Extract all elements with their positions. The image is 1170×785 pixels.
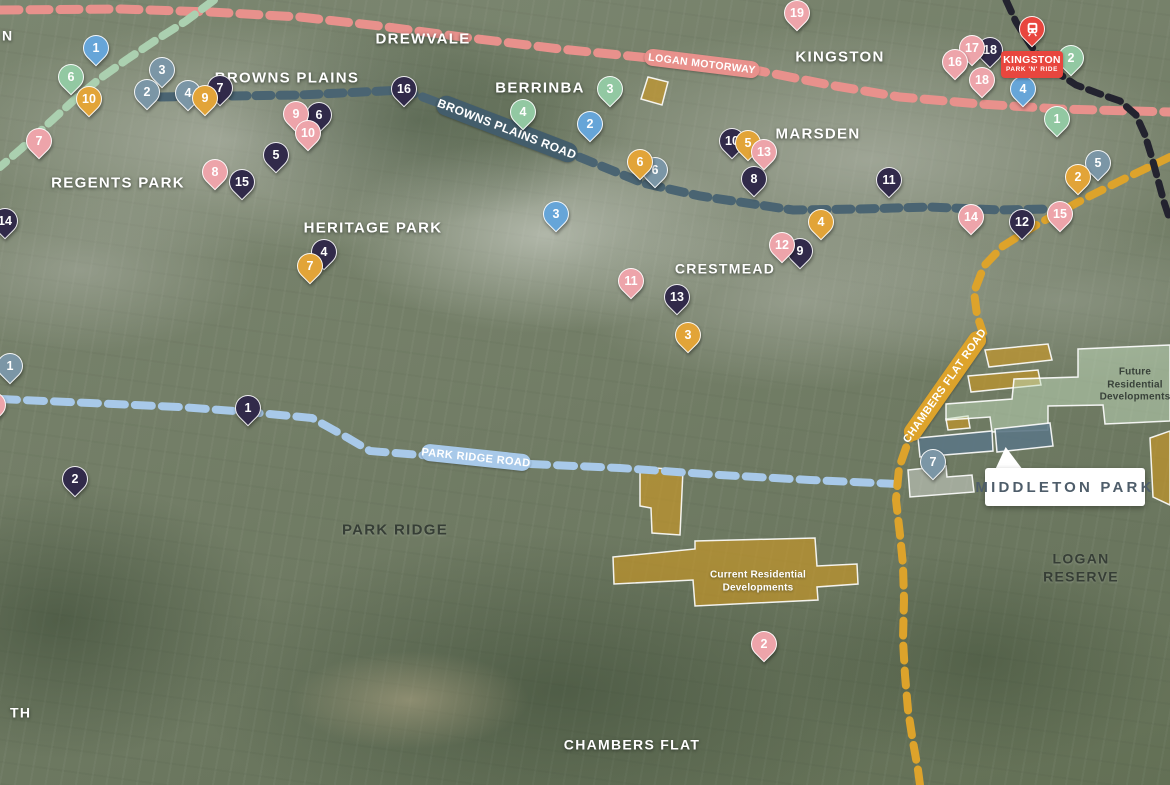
middleton-park-callout[interactable]: MIDDLETON PARK	[985, 468, 1145, 506]
place-label-park-ridge: PARK RIDGE	[342, 522, 448, 541]
middleton-park-title: MIDDLETON PARK	[975, 479, 1154, 496]
place-label-chambers-flat: CHAMBERS FLAT	[564, 736, 700, 754]
place-label-browns-plains: BROWNS PLAINS	[215, 70, 359, 89]
place-label-marsden: MARSDEN	[776, 126, 861, 145]
kingston-park-n-ride-badge[interactable]: KINGSTON PARK 'N' RIDE	[1001, 51, 1063, 78]
place-label-th: TH	[10, 704, 31, 722]
place-label-crestmead: CRESTMEAD	[675, 260, 775, 278]
place-label-n: N	[2, 27, 13, 45]
place-label-berrinba: BERRINBA	[495, 80, 585, 99]
place-label-future-residential: Future Residential Developments	[1100, 366, 1170, 404]
place-label-heritage-park: HERITAGE PARK	[304, 220, 443, 239]
train-icon	[1025, 22, 1040, 37]
place-label-regents-park: REGENTS PARK	[51, 175, 185, 194]
station-subtitle: PARK 'N' RIDE	[1006, 66, 1058, 73]
place-label-current-residential: Current Residential Developments	[710, 570, 806, 595]
place-label-logan-reserve: LOGAN RESERVE	[1037, 551, 1126, 586]
station-name: KINGSTON	[1003, 55, 1061, 66]
map-stage: LOGAN MOTORWAYBROWNS PLAINS ROADPARK RID…	[0, 0, 1170, 785]
place-label-kingston: KINGSTON	[795, 49, 884, 68]
place-label-drewvale: DREWVALE	[375, 31, 470, 50]
